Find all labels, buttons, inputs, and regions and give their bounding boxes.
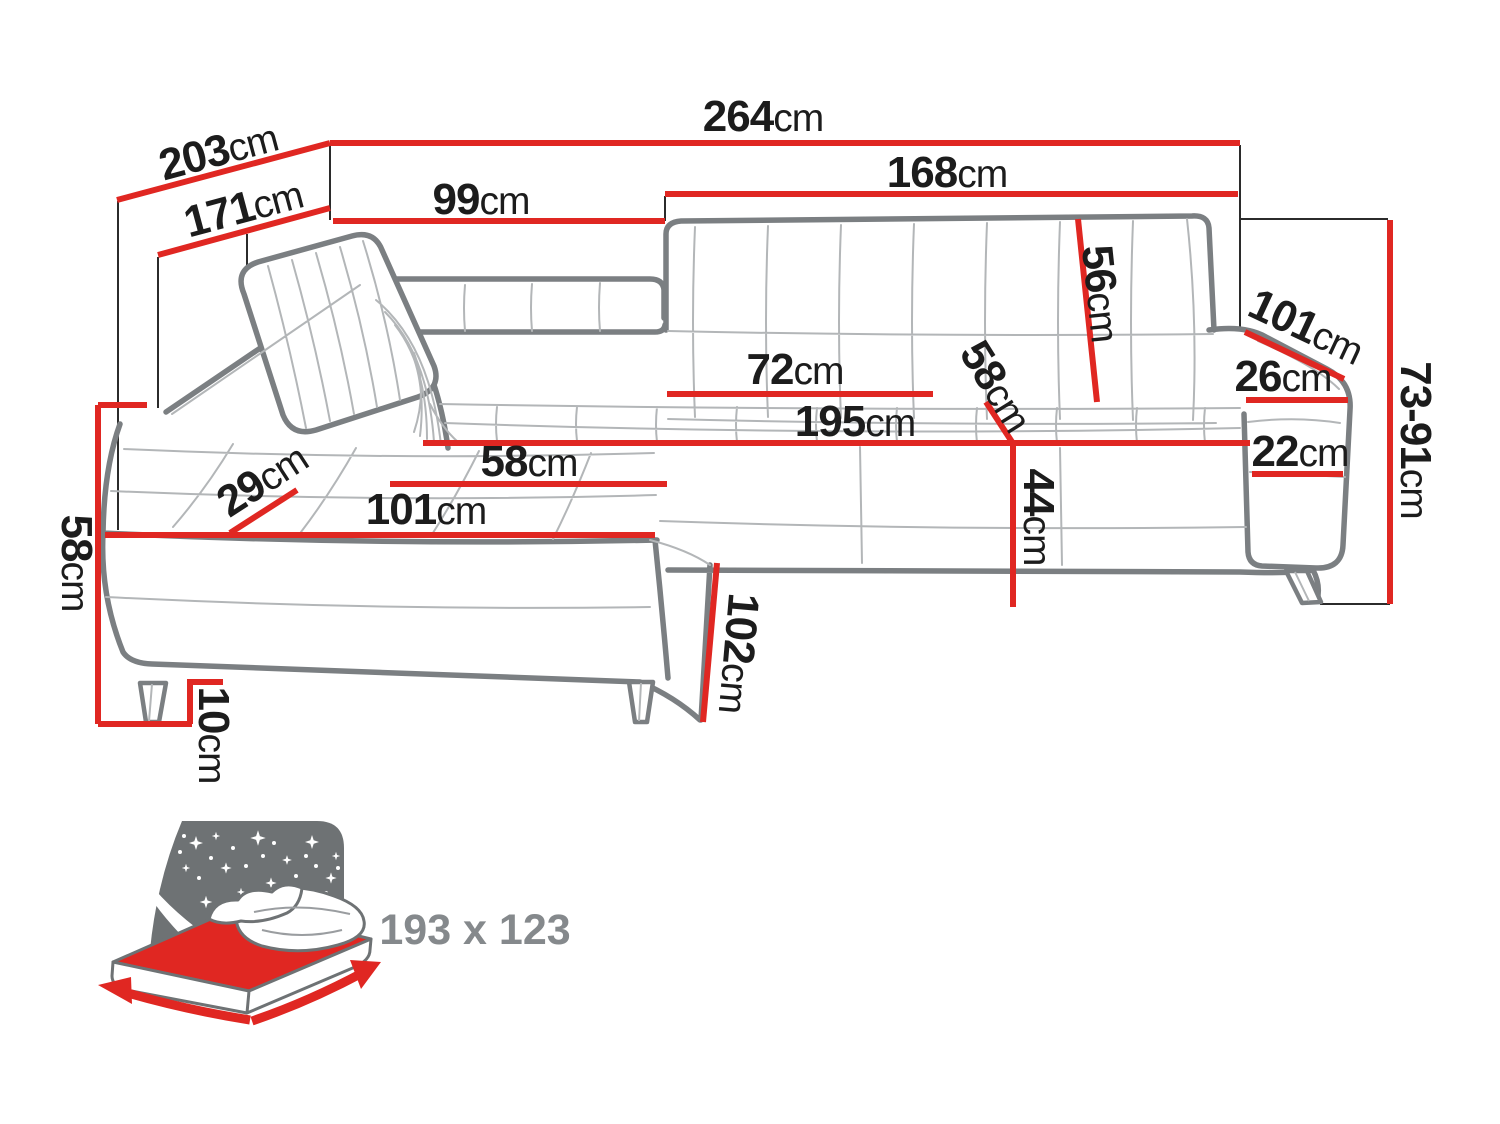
dim-label-chaise-seat-depth: 58cm — [481, 437, 578, 486]
dim-label-total-height-range: 73-91cm — [1391, 361, 1440, 519]
dim-label-right-back-width: 168cm — [887, 148, 1007, 197]
dim-label-total-depth: 203cm — [154, 112, 283, 190]
dim-label-seat-height-front: 44cm — [1014, 469, 1063, 566]
dim-label-leg-height: 10cm — [189, 687, 238, 784]
bed-size-label: 193 x 123 — [379, 906, 570, 954]
sleep-function-icon: 193 x 123 — [98, 821, 571, 1021]
headrest-pillow — [241, 235, 436, 432]
dim-label-corner-back-width: 99cm — [433, 175, 530, 224]
dim-label-seat-cushion-width: 72cm — [747, 345, 844, 394]
dim-label-chaise-seat-width: 101cm — [366, 485, 486, 534]
dim-label-armrest-top-width: 26cm — [1235, 352, 1332, 401]
dim-label-chaise-length: 102cm — [709, 591, 768, 715]
dim-label-armrest-side-height: 22cm — [1252, 427, 1349, 476]
dim-label-backrest-height: 56cm — [1072, 243, 1131, 345]
diagram-canvas: 264cm 203cm 171cm 99cm 168cm 56cm 101cm … — [0, 0, 1500, 1124]
dim-label-seat-front-width: 195cm — [795, 397, 915, 446]
sofa-dimension-diagram: 264cm 203cm 171cm 99cm 168cm 56cm 101cm … — [0, 0, 1500, 1124]
dim-label-total-width: 264cm — [703, 92, 823, 141]
dim-label-chaise-side-height: 58cm — [52, 515, 101, 612]
